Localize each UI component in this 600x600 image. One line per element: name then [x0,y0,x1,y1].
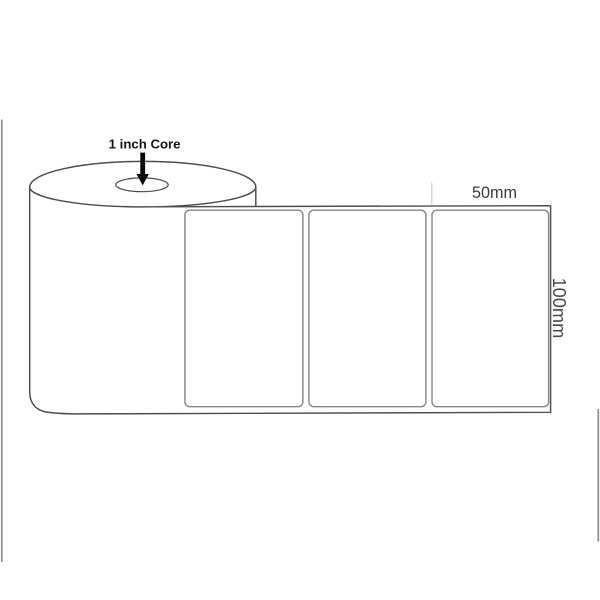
svg-text:100mm: 100mm [549,278,569,339]
svg-text:1 inch Core: 1 inch Core [109,136,181,151]
svg-text:50mm: 50mm [472,184,517,202]
